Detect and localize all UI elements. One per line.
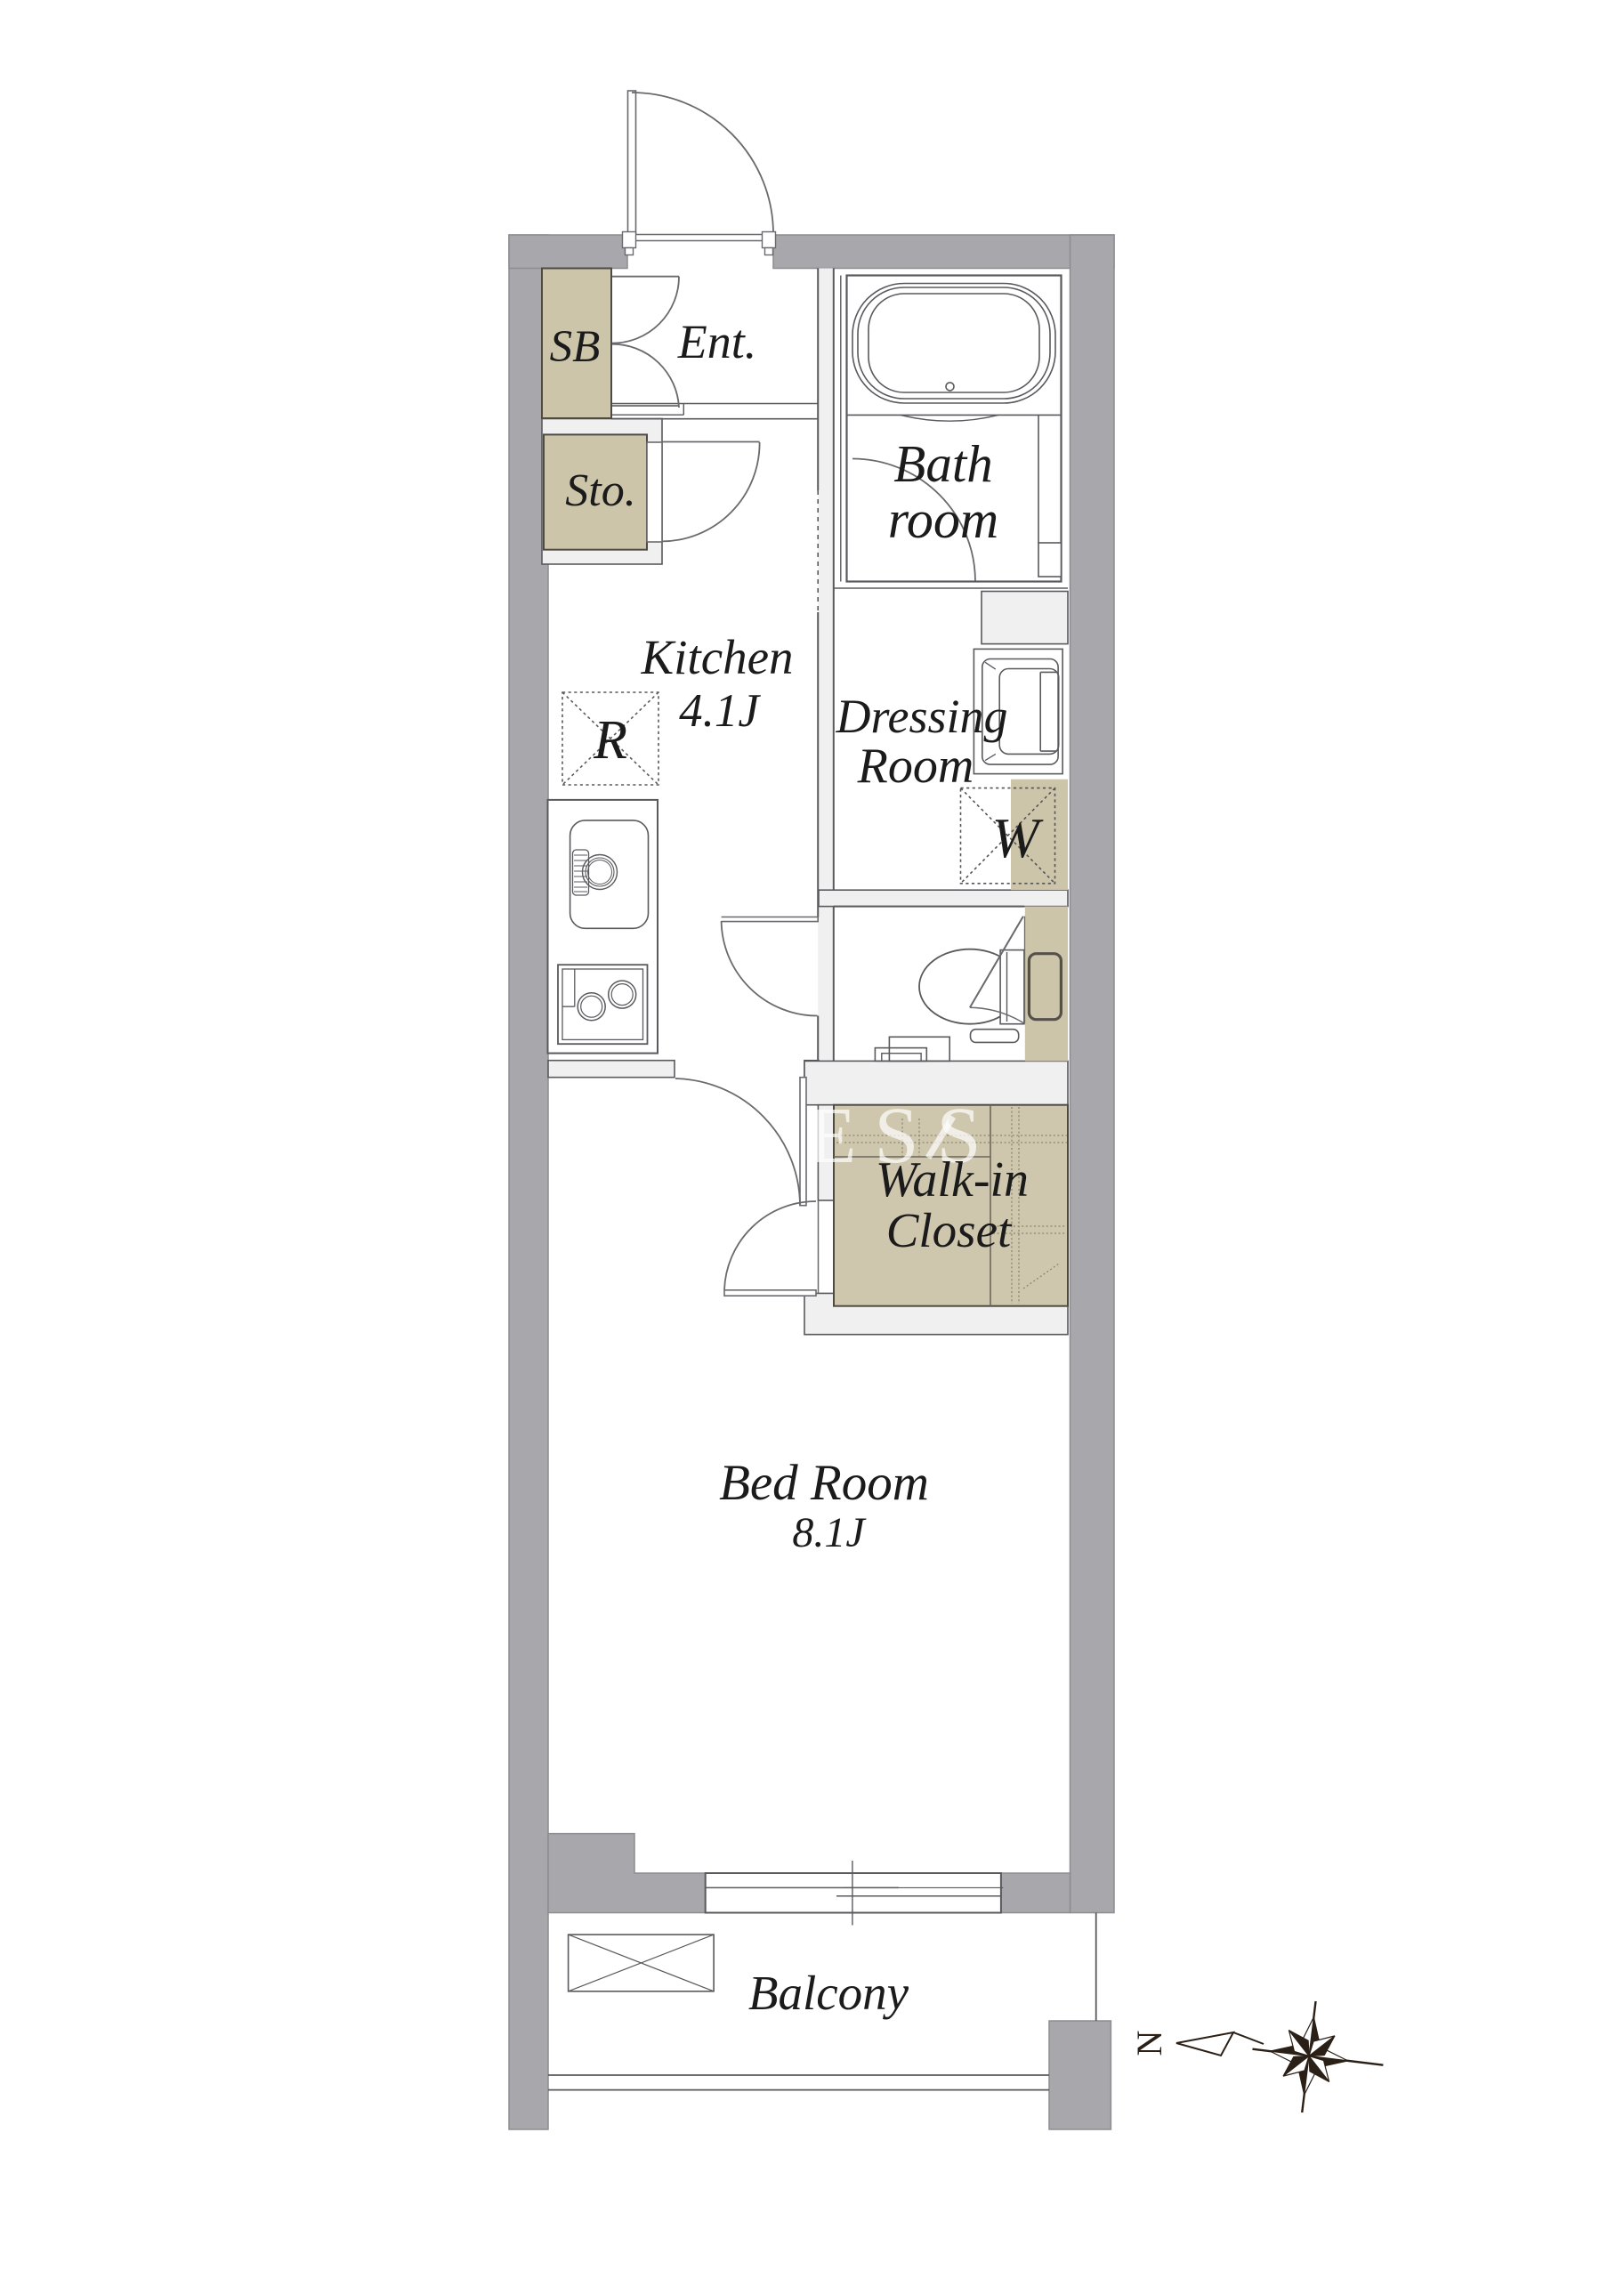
svg-text:Bath: Bath [893, 434, 992, 493]
svg-text:Ent.: Ent. [677, 315, 757, 368]
svg-text:W: W [991, 806, 1044, 869]
svg-text:SB: SB [550, 322, 601, 372]
svg-text:Room: Room [857, 739, 974, 794]
svg-text:Bed Room: Bed Room [719, 1455, 929, 1511]
svg-text:R: R [593, 710, 627, 771]
svg-text:Walk-in: Walk-in [876, 1152, 1029, 1208]
svg-text:8.1J: 8.1J [792, 1509, 867, 1556]
svg-text:Balcony: Balcony [748, 1966, 909, 2020]
svg-text:4.1J: 4.1J [679, 685, 761, 737]
svg-text:room: room [888, 490, 998, 549]
svg-text:N: N [1129, 2031, 1169, 2056]
svg-text:Dressing: Dressing [835, 690, 1007, 743]
svg-text:Kitchen: Kitchen [640, 630, 793, 684]
svg-text:Sto.: Sto. [565, 465, 635, 516]
svg-text:Closet: Closet [886, 1203, 1013, 1257]
